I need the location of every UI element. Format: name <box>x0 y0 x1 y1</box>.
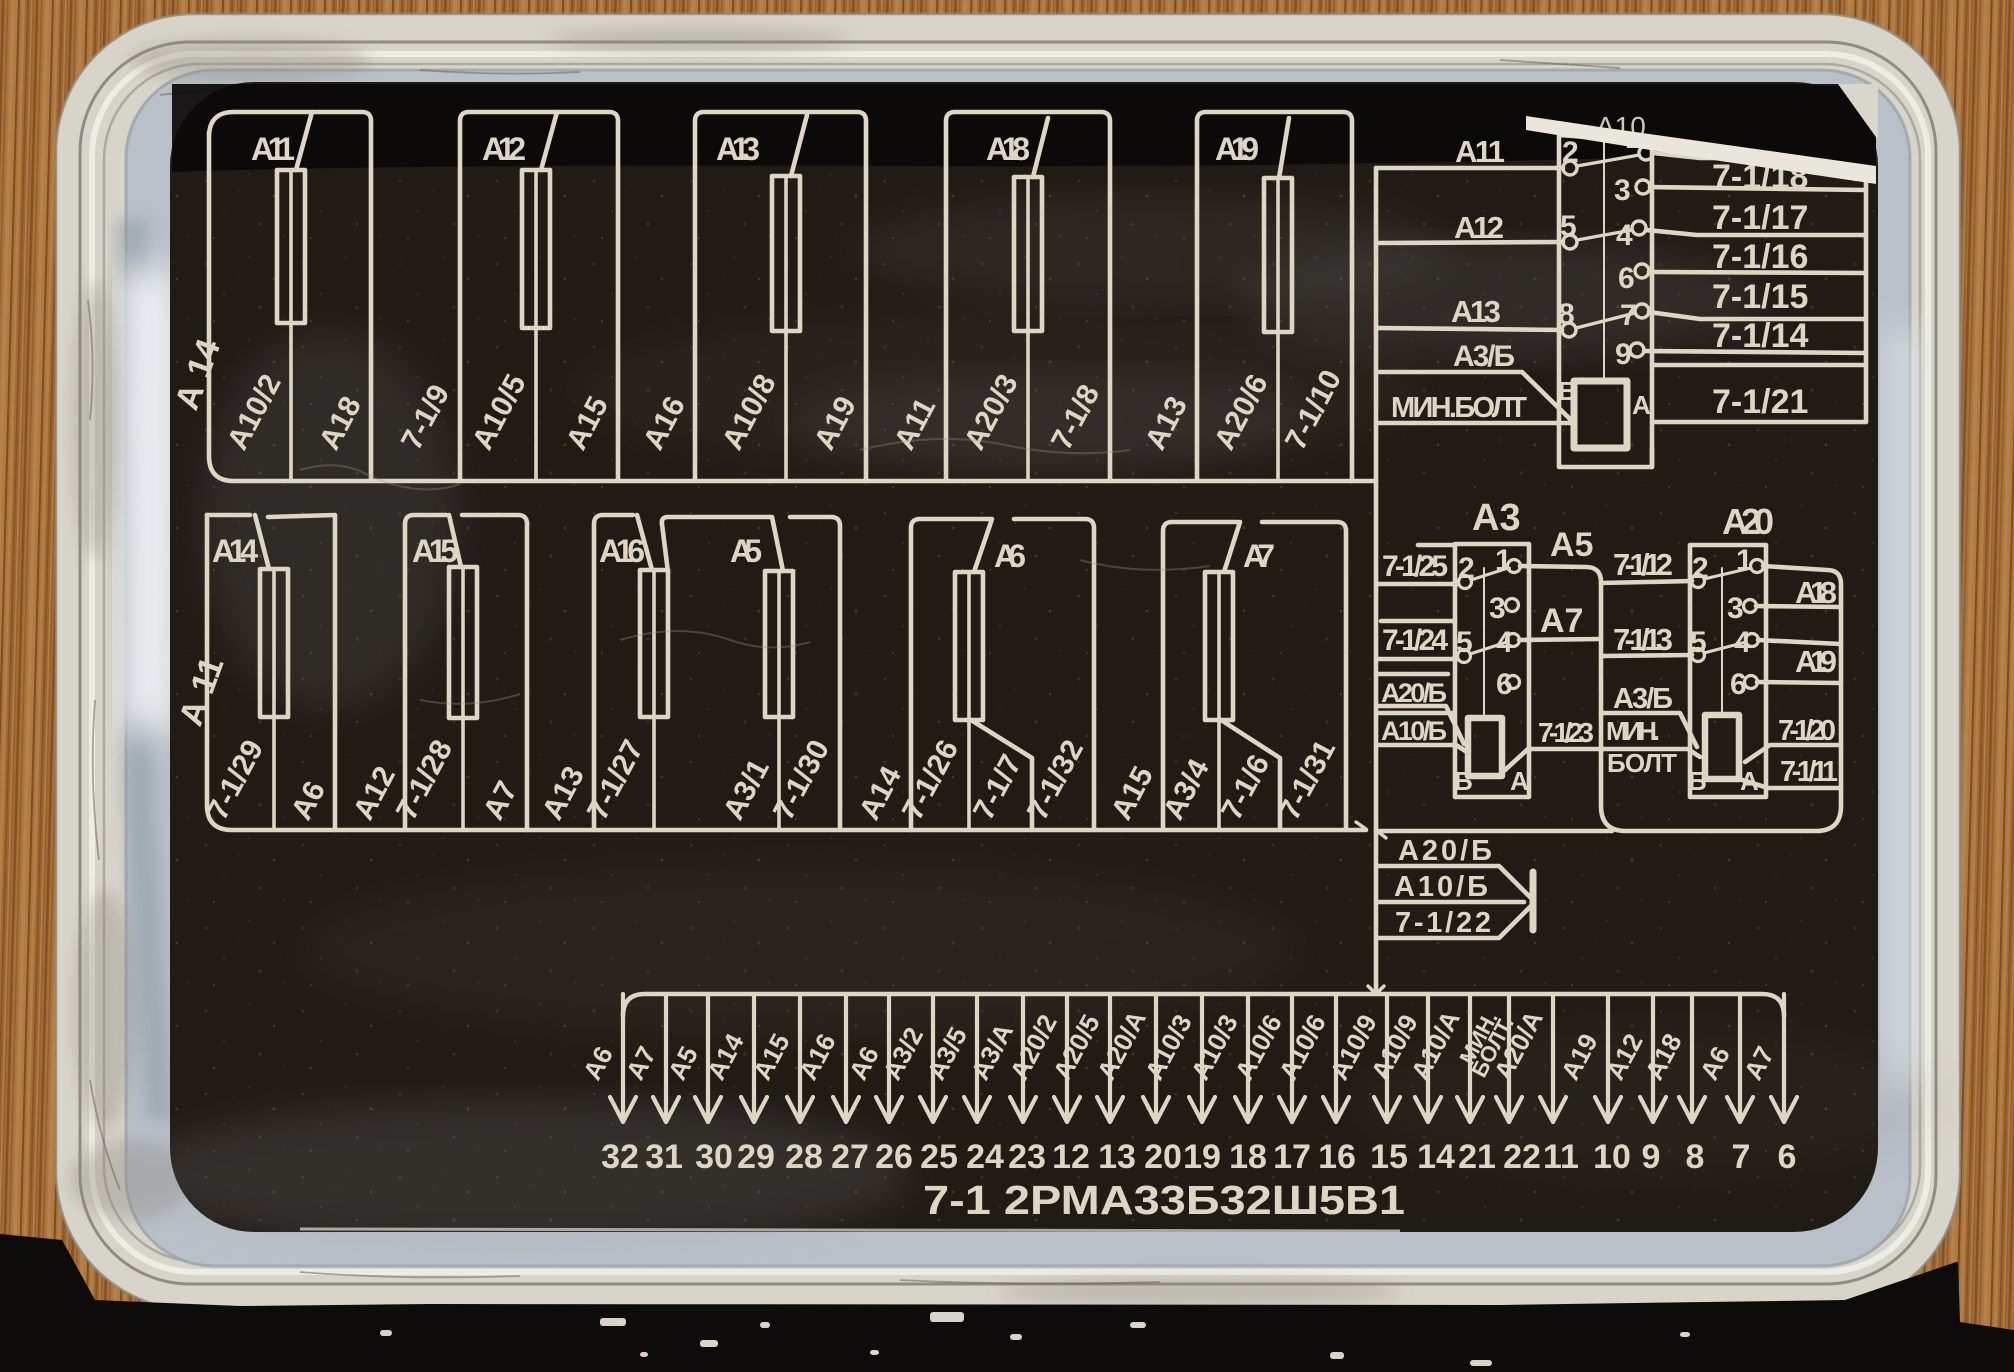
svg-text:16: 16 <box>1318 1138 1356 1176</box>
svg-text:7-1 2РМА33Б32Ш5В1: 7-1 2РМА33Б32Ш5В1 <box>923 1177 1405 1223</box>
svg-text:26: 26 <box>875 1138 913 1176</box>
svg-text:А13: А13 <box>1451 294 1501 329</box>
svg-text:4: 4 <box>1734 626 1751 659</box>
svg-text:25: 25 <box>920 1138 958 1176</box>
svg-text:30: 30 <box>695 1138 733 1176</box>
svg-text:МИН.: МИН. <box>1606 716 1660 746</box>
svg-text:6: 6 <box>1618 262 1635 295</box>
svg-text:15: 15 <box>1370 1138 1408 1176</box>
svg-text:1: 1 <box>1495 544 1512 577</box>
svg-text:А18: А18 <box>1795 575 1837 610</box>
svg-text:7-1/23: 7-1/23 <box>1538 717 1594 748</box>
svg-text:5: 5 <box>1560 210 1577 243</box>
svg-text:9: 9 <box>1615 338 1632 371</box>
svg-text:13: 13 <box>1098 1138 1136 1176</box>
svg-text:А3/Б: А3/Б <box>1453 340 1515 373</box>
svg-text:А5: А5 <box>730 533 762 569</box>
svg-text:11: 11 <box>1543 1138 1579 1176</box>
svg-text:А10/Б: А10/Б <box>1394 871 1488 903</box>
svg-text:4: 4 <box>1616 219 1633 252</box>
svg-text:7-1/24: 7-1/24 <box>1382 624 1448 657</box>
svg-text:23: 23 <box>1008 1138 1046 1176</box>
svg-text:7-1/15: 7-1/15 <box>1712 278 1808 316</box>
svg-text:А3: А3 <box>1472 497 1521 539</box>
svg-text:31: 31 <box>645 1138 683 1176</box>
svg-text:17: 17 <box>1273 1138 1311 1176</box>
svg-text:А19: А19 <box>1795 644 1837 679</box>
svg-text:7-1/20: 7-1/20 <box>1778 715 1836 747</box>
svg-text:19: 19 <box>1183 1138 1221 1176</box>
svg-text:14: 14 <box>1417 1138 1455 1176</box>
svg-text:А: А <box>1740 766 1759 796</box>
svg-text:Б: Б <box>1688 766 1707 796</box>
svg-text:20: 20 <box>1144 1138 1182 1176</box>
svg-text:А3/Б: А3/Б <box>1613 683 1673 715</box>
svg-text:А14: А14 <box>212 533 258 569</box>
svg-text:8: 8 <box>1558 298 1575 331</box>
svg-text:1: 1 <box>1736 544 1753 577</box>
svg-text:7-1/16: 7-1/16 <box>1712 238 1808 276</box>
svg-text:А10/Б: А10/Б <box>1381 716 1447 746</box>
svg-text:22: 22 <box>1503 1138 1541 1176</box>
svg-text:А15: А15 <box>412 533 458 569</box>
svg-text:А: А <box>1510 766 1529 796</box>
svg-text:28: 28 <box>785 1138 823 1176</box>
svg-text:3: 3 <box>1614 174 1631 207</box>
svg-text:7-1/14: 7-1/14 <box>1712 317 1808 355</box>
svg-text:7-1/12: 7-1/12 <box>1613 547 1673 582</box>
svg-text:2: 2 <box>1692 552 1709 585</box>
svg-text:2: 2 <box>1458 552 1475 585</box>
svg-text:27: 27 <box>831 1138 869 1176</box>
svg-text:7-1/17: 7-1/17 <box>1712 199 1808 237</box>
svg-text:А: А <box>1632 390 1651 420</box>
svg-text:БОЛТ: БОЛТ <box>1607 748 1677 778</box>
svg-text:2: 2 <box>1562 136 1579 169</box>
svg-text:А19: А19 <box>1215 131 1259 167</box>
svg-text:А6: А6 <box>994 538 1026 574</box>
svg-text:А7: А7 <box>1243 538 1275 574</box>
svg-text:А16: А16 <box>599 533 645 569</box>
svg-text:Б: Б <box>1454 766 1473 796</box>
svg-text:А11: А11 <box>251 131 295 167</box>
svg-text:3: 3 <box>1489 592 1506 625</box>
svg-text:А12: А12 <box>1454 210 1504 245</box>
svg-text:24: 24 <box>966 1138 1004 1176</box>
svg-text:18: 18 <box>1229 1138 1267 1176</box>
svg-text:21: 21 <box>1458 1138 1496 1176</box>
svg-text:7-1/13: 7-1/13 <box>1613 622 1673 657</box>
svg-text:7-1/11: 7-1/11 <box>1780 756 1838 788</box>
svg-text:6: 6 <box>1778 1138 1797 1176</box>
svg-text:А12: А12 <box>482 131 526 167</box>
svg-text:А11: А11 <box>1455 134 1505 169</box>
svg-text:А18: А18 <box>986 131 1030 167</box>
svg-text:3: 3 <box>1727 592 1744 625</box>
svg-text:9: 9 <box>1642 1138 1661 1176</box>
svg-text:А20/Б: А20/Б <box>1381 678 1447 708</box>
svg-text:7: 7 <box>1732 1138 1751 1176</box>
svg-text:29: 29 <box>737 1138 775 1176</box>
svg-text:7-1/25: 7-1/25 <box>1382 550 1448 583</box>
svg-text:4: 4 <box>1496 626 1513 659</box>
svg-text:Б: Б <box>1558 376 1577 406</box>
svg-text:А5: А5 <box>1550 526 1593 564</box>
svg-text:А20/Б: А20/Б <box>1398 835 1492 867</box>
svg-text:А7: А7 <box>1540 602 1583 640</box>
svg-text:МИН.БОЛТ: МИН.БОЛТ <box>1391 392 1527 424</box>
svg-text:7-1/21: 7-1/21 <box>1712 383 1808 421</box>
svg-text:5: 5 <box>1690 626 1707 659</box>
svg-text:А20: А20 <box>1722 501 1774 542</box>
svg-text:5: 5 <box>1456 626 1473 659</box>
svg-text:А13: А13 <box>716 131 760 167</box>
svg-text:6: 6 <box>1730 668 1747 701</box>
svg-text:8: 8 <box>1686 1138 1705 1176</box>
svg-text:6: 6 <box>1496 668 1513 701</box>
svg-text:12: 12 <box>1052 1138 1090 1176</box>
svg-text:32: 32 <box>601 1138 639 1176</box>
svg-text:10: 10 <box>1593 1138 1631 1176</box>
svg-text:7: 7 <box>1620 299 1637 332</box>
